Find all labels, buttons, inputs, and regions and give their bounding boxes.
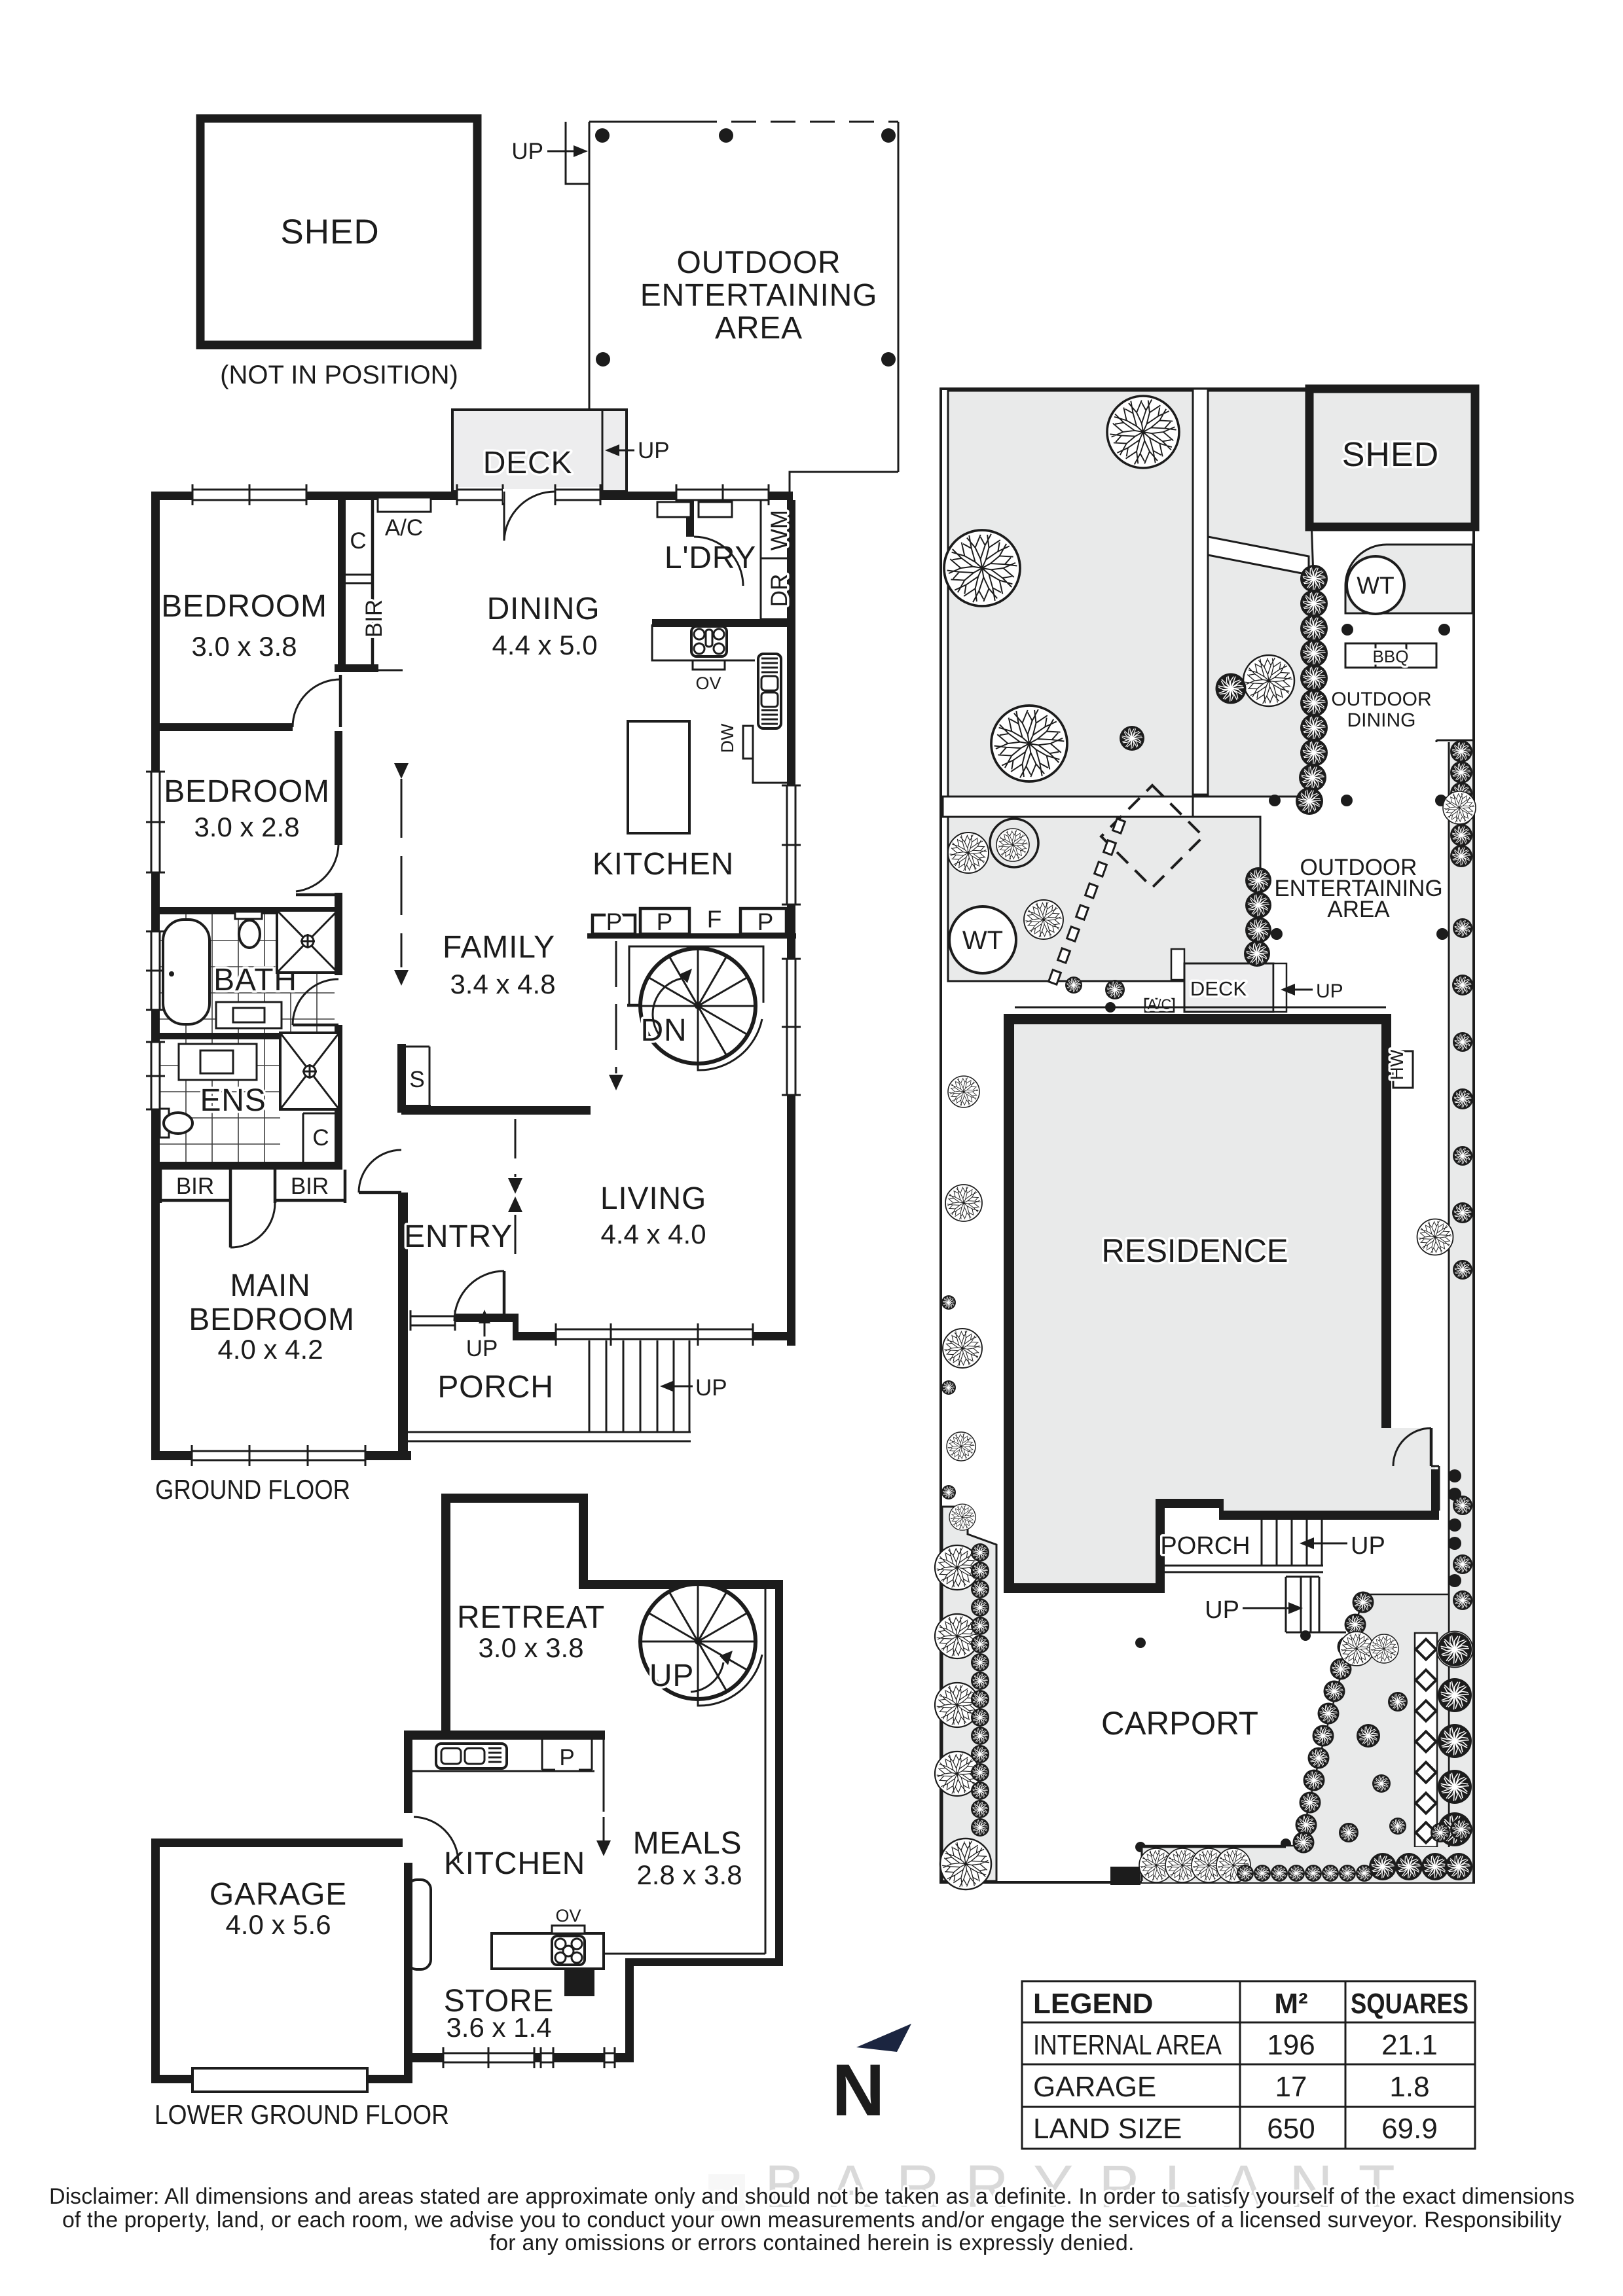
svg-text:UP: UP: [649, 1659, 694, 1693]
svg-text:BEDROOM: BEDROOM: [161, 589, 327, 624]
svg-text:SHED: SHED: [1342, 436, 1439, 474]
svg-text:P: P: [559, 1745, 574, 1770]
svg-text:DECK: DECK: [483, 446, 573, 480]
svg-text:21.1: 21.1: [1381, 2029, 1438, 2061]
svg-text:FAMILY: FAMILY: [443, 930, 555, 965]
svg-text:DN: DN: [641, 1013, 687, 1048]
svg-text:4.0 x 5.6: 4.0 x 5.6: [225, 1909, 331, 1940]
svg-text:M²: M²: [1274, 1988, 1307, 2020]
svg-text:S: S: [409, 1067, 424, 1092]
svg-text:ENTRY: ENTRY: [404, 1219, 513, 1254]
svg-text:Disclaimer: All dimensions and: Disclaimer: All dimensions and areas sta…: [49, 2184, 1575, 2209]
svg-text:DW: DW: [718, 723, 737, 753]
svg-text:OV: OV: [555, 1906, 581, 1926]
svg-text:P: P: [657, 908, 673, 935]
svg-text:2.8 x 3.8: 2.8 x 3.8: [636, 1859, 742, 1890]
svg-text:P: P: [757, 908, 774, 935]
svg-text:F: F: [707, 906, 722, 933]
svg-text:C: C: [312, 1125, 329, 1151]
svg-text:BIR: BIR: [361, 600, 387, 637]
svg-text:LOWER GROUND FLOOR: LOWER GROUND FLOOR: [155, 2099, 449, 2130]
svg-text:UP: UP: [511, 139, 543, 164]
svg-text:LEGEND: LEGEND: [1033, 1988, 1153, 2020]
svg-text:WM: WM: [767, 510, 792, 550]
svg-text:MAIN: MAIN: [230, 1268, 310, 1303]
svg-text:PORCH: PORCH: [1160, 1532, 1250, 1560]
svg-text:BBQ: BBQ: [1373, 647, 1409, 666]
svg-text:4.4 x 5.0: 4.4 x 5.0: [492, 630, 597, 660]
svg-text:N: N: [832, 2049, 885, 2131]
svg-text:UP: UP: [695, 1375, 727, 1401]
svg-text:RESIDENCE: RESIDENCE: [1102, 1232, 1288, 1269]
svg-text:GROUND FLOOR: GROUND FLOOR: [155, 1474, 350, 1505]
svg-text:SHED: SHED: [280, 213, 379, 251]
svg-text:DINING: DINING: [1347, 709, 1416, 731]
svg-text:3.0 x 3.8: 3.0 x 3.8: [191, 631, 297, 662]
svg-text:3.4 x 4.8: 3.4 x 4.8: [450, 969, 555, 999]
svg-text:INTERNAL AREA: INTERNAL AREA: [1033, 2029, 1222, 2061]
svg-text:DINING: DINING: [487, 592, 600, 626]
svg-text:4.4 x 4.0: 4.4 x 4.0: [600, 1219, 706, 1249]
svg-text:UP: UP: [1351, 1532, 1385, 1560]
svg-text:OUTDOOR: OUTDOOR: [1331, 689, 1431, 710]
svg-text:OUTDOOR: OUTDOOR: [677, 245, 841, 280]
svg-text:L'DRY: L'DRY: [665, 541, 756, 575]
svg-text:A/C: A/C: [1148, 996, 1172, 1013]
svg-text:BEDROOM: BEDROOM: [189, 1302, 355, 1337]
svg-text:UP: UP: [466, 1336, 498, 1361]
svg-text:196: 196: [1267, 2029, 1315, 2061]
svg-text:4.0 x 4.2: 4.0 x 4.2: [217, 1334, 323, 1365]
svg-text:of the property, land, or each: of the property, land, or each room, we …: [62, 2208, 1561, 2233]
svg-text:3.0 x 2.8: 3.0 x 2.8: [194, 812, 299, 842]
svg-text:CARPORT: CARPORT: [1101, 1705, 1258, 1742]
svg-text:1.8: 1.8: [1389, 2071, 1429, 2103]
svg-text:3.6 x 1.4: 3.6 x 1.4: [446, 2012, 551, 2043]
svg-text:UP: UP: [638, 438, 670, 463]
svg-text:WT: WT: [962, 926, 1003, 955]
svg-text:P: P: [606, 908, 623, 935]
svg-text:GARAGE: GARAGE: [1033, 2071, 1156, 2103]
svg-text:KITCHEN: KITCHEN: [444, 1846, 585, 1881]
svg-text:BIR: BIR: [176, 1174, 214, 1199]
svg-text:69.9: 69.9: [1381, 2113, 1438, 2145]
svg-text:for any omissions or errors co: for any omissions or errors contained he…: [490, 2231, 1135, 2255]
svg-text:WT: WT: [1357, 572, 1395, 599]
svg-text:AREA: AREA: [1327, 897, 1390, 922]
svg-text:BIR: BIR: [291, 1174, 329, 1199]
svg-text:SQUARES: SQUARES: [1351, 1988, 1468, 2020]
svg-text:OV: OV: [695, 673, 721, 693]
svg-text:A/C: A/C: [385, 515, 423, 541]
svg-text:UP: UP: [1205, 1596, 1239, 1624]
svg-text:MEALS: MEALS: [633, 1826, 742, 1861]
svg-text:HW: HW: [1387, 1049, 1407, 1080]
svg-text:UP: UP: [1316, 980, 1343, 1002]
svg-text:ENTERTAINING: ENTERTAINING: [640, 278, 878, 313]
svg-text:PORCH: PORCH: [437, 1370, 553, 1405]
svg-text:(NOT IN POSITION): (NOT IN POSITION): [220, 361, 458, 389]
svg-text:C: C: [350, 528, 366, 554]
svg-text:DECK: DECK: [1190, 977, 1247, 1000]
svg-text:DR: DR: [767, 574, 792, 607]
svg-text:17: 17: [1275, 2071, 1307, 2103]
svg-text:RETREAT: RETREAT: [457, 1600, 605, 1635]
svg-text:LAND SIZE: LAND SIZE: [1033, 2113, 1182, 2145]
svg-text:BEDROOM: BEDROOM: [164, 774, 330, 809]
svg-text:KITCHEN: KITCHEN: [593, 847, 734, 882]
svg-text:AREA: AREA: [715, 311, 803, 346]
svg-text:3.0 x 3.8: 3.0 x 3.8: [478, 1632, 583, 1663]
svg-text:ENS: ENS: [200, 1083, 266, 1118]
svg-text:GARAGE: GARAGE: [210, 1877, 347, 1912]
svg-text:650: 650: [1267, 2113, 1315, 2145]
svg-text:LIVING: LIVING: [600, 1181, 706, 1216]
